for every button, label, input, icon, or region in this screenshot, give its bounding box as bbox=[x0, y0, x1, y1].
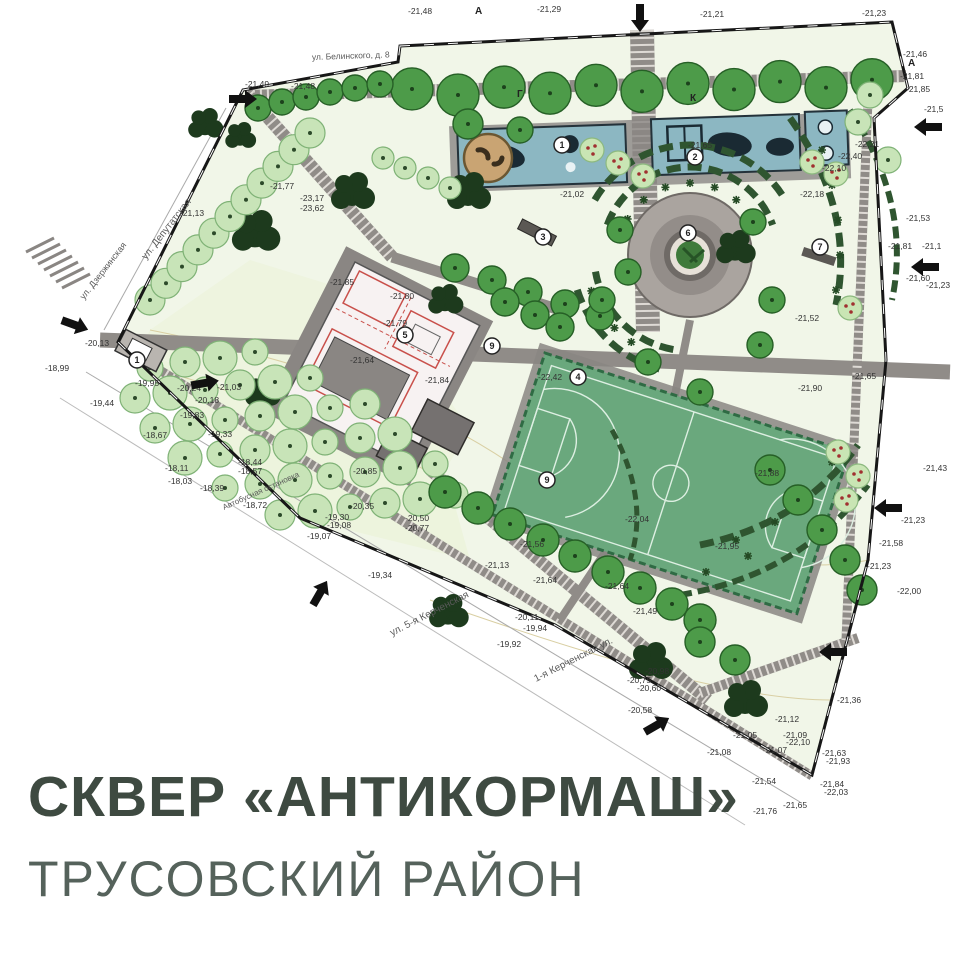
tree-existing bbox=[297, 365, 323, 391]
tree-existing bbox=[203, 341, 237, 375]
tree-existing bbox=[345, 423, 375, 453]
tree-deciduous bbox=[507, 117, 533, 143]
elevation-label: -22,42 bbox=[538, 372, 562, 382]
elevation-label: -22,00 bbox=[897, 586, 921, 596]
elevation-label: -21,36 bbox=[837, 695, 861, 705]
area-number-marker: 6 bbox=[680, 225, 696, 241]
site-plan-drawing: -21,48-21,29-21,21-21,23-21,49-21,48-21,… bbox=[0, 0, 960, 960]
svg-text:2: 2 bbox=[692, 152, 697, 162]
tree-deciduous bbox=[391, 68, 433, 110]
elevation-label: -21,80 bbox=[390, 291, 414, 301]
tree-deciduous bbox=[759, 61, 801, 103]
elevation-label: -21,23 bbox=[901, 515, 925, 525]
shrub-star-icon bbox=[702, 568, 710, 576]
elevation-label: -23,17 bbox=[300, 193, 324, 203]
elevation-label: -20,11 bbox=[515, 612, 539, 622]
tree-deciduous bbox=[269, 89, 295, 115]
elevation-label: -18,57 bbox=[238, 466, 262, 476]
elevation-label: -21,76 bbox=[753, 806, 777, 816]
elevation-label: -21,65 bbox=[688, 140, 712, 150]
shrub-rose bbox=[631, 164, 655, 188]
street-label: 1-я Керченская ул. bbox=[532, 635, 614, 684]
elevation-label: -21,95 bbox=[715, 541, 739, 551]
tree-existing bbox=[312, 429, 338, 455]
elevation-label: -18,39 bbox=[200, 483, 224, 493]
axis-letter: Г bbox=[517, 89, 523, 100]
entrance-arrow-icon bbox=[914, 118, 942, 136]
shrub-star-icon bbox=[640, 196, 648, 204]
elevation-label: -21,65 bbox=[783, 800, 807, 810]
shrub-star-icon bbox=[732, 196, 740, 204]
tree-deciduous bbox=[713, 69, 755, 111]
elevation-label: -22,40 bbox=[838, 151, 862, 161]
shrub-star-icon bbox=[711, 183, 719, 191]
svg-text:5: 5 bbox=[402, 330, 407, 340]
elevation-label: -21,43 bbox=[923, 463, 947, 473]
elevation-label: -21,5 bbox=[924, 104, 944, 114]
shrub-star-icon bbox=[836, 251, 844, 259]
elevation-label: -21,84 bbox=[425, 375, 449, 385]
stairs-west bbox=[26, 238, 90, 288]
tree-deciduous bbox=[720, 645, 750, 675]
tree-existing bbox=[207, 441, 233, 467]
tree-deciduous bbox=[529, 72, 571, 114]
elevation-label: -21,53 bbox=[906, 213, 930, 223]
tree-deciduous bbox=[429, 476, 461, 508]
shrub-star-icon bbox=[610, 324, 618, 332]
elevation-label: -20,60 bbox=[637, 683, 661, 693]
tree-deciduous bbox=[685, 627, 715, 657]
elevation-label: -19,94 bbox=[523, 623, 547, 633]
tree-deciduous bbox=[807, 515, 837, 545]
elevation-label: -18,11 bbox=[165, 463, 189, 473]
area-number-marker: 1 bbox=[554, 137, 570, 153]
tree-deciduous bbox=[494, 508, 526, 540]
elevation-label: -21,64 bbox=[350, 355, 374, 365]
elevation-label: -21,13 bbox=[485, 560, 509, 570]
elevation-label: -19,33 bbox=[208, 429, 232, 439]
tree-deciduous bbox=[687, 379, 713, 405]
shrub-rose bbox=[834, 488, 858, 512]
elevation-label: -20,18 bbox=[195, 395, 219, 405]
tree-deciduous bbox=[575, 64, 617, 106]
elevation-label: -22,21 bbox=[855, 139, 879, 149]
park-masterplan-page: -21,48-21,29-21,21-21,23-21,49-21,48-21,… bbox=[0, 0, 960, 960]
elevation-label: -21,85 bbox=[330, 277, 354, 287]
elevation-label: -21,23 bbox=[926, 280, 950, 290]
elevation-label: -20,35 bbox=[350, 501, 374, 511]
area-number-marker: 5 bbox=[397, 327, 413, 343]
tree-existing bbox=[317, 395, 343, 421]
elevation-label: -21,49 bbox=[245, 79, 269, 89]
tree-existing bbox=[170, 347, 200, 377]
tree-existing bbox=[372, 147, 394, 169]
svg-text:1: 1 bbox=[134, 355, 139, 365]
svg-text:1: 1 bbox=[559, 140, 564, 150]
elevation-label: -21,65 bbox=[852, 371, 876, 381]
area-number-marker: 1 bbox=[129, 352, 145, 368]
tree-existing bbox=[439, 177, 461, 199]
tree-deciduous bbox=[491, 288, 519, 316]
shrub-star-icon bbox=[832, 286, 840, 294]
svg-text:3: 3 bbox=[540, 232, 545, 242]
tree-existing bbox=[265, 500, 295, 530]
shrub-rose bbox=[606, 151, 630, 175]
svg-text:9: 9 bbox=[544, 475, 549, 485]
elevation-label: -21,29 bbox=[537, 4, 561, 14]
tree-deciduous bbox=[441, 254, 469, 282]
tree-existing bbox=[317, 463, 343, 489]
tree-deciduous bbox=[317, 79, 343, 105]
entrance-arrow-icon bbox=[305, 576, 335, 609]
elevation-label: -18,99 bbox=[45, 363, 69, 373]
tree-deciduous bbox=[589, 287, 615, 313]
shrub-rose bbox=[846, 464, 870, 488]
elevation-label: -19,34 bbox=[368, 570, 392, 580]
elevation-label: -20,58 bbox=[628, 705, 652, 715]
entrance-arrow-icon bbox=[874, 499, 902, 517]
elevation-label: -20,13 bbox=[85, 338, 109, 348]
shrub-star-icon bbox=[744, 552, 752, 560]
tree-existing bbox=[278, 395, 312, 429]
elevation-label: -21,90 bbox=[798, 383, 822, 393]
entrance-arrow-icon bbox=[631, 4, 649, 32]
tree-deciduous bbox=[607, 217, 633, 243]
tree-existing bbox=[245, 401, 275, 431]
elevation-label: -21,23 bbox=[862, 8, 886, 18]
tree-deciduous bbox=[783, 485, 813, 515]
tree-existing bbox=[422, 451, 448, 477]
elevation-label: -21,64 bbox=[605, 581, 629, 591]
tree-existing bbox=[417, 167, 439, 189]
elevation-label: -21,48 bbox=[408, 6, 432, 16]
svg-text:7: 7 bbox=[817, 242, 822, 252]
elevation-label: -21,05 bbox=[733, 730, 757, 740]
tree-deciduous bbox=[521, 301, 549, 329]
tree-deciduous bbox=[740, 209, 766, 235]
shrub-star-icon bbox=[661, 183, 669, 191]
elevation-label: -21,03 bbox=[217, 382, 241, 392]
tree-deciduous bbox=[747, 332, 773, 358]
tree-existing bbox=[378, 417, 412, 451]
tree-existing bbox=[875, 147, 901, 173]
shrub-rose bbox=[826, 440, 850, 464]
tree-deciduous bbox=[546, 313, 574, 341]
elevation-label: -18,03 bbox=[168, 476, 192, 486]
area-number-marker: 7 bbox=[812, 239, 828, 255]
tree-deciduous bbox=[805, 67, 847, 109]
tree-deciduous bbox=[559, 540, 591, 572]
elevation-label: -19,95 bbox=[135, 378, 159, 388]
tree-existing bbox=[857, 82, 883, 108]
tree-deciduous bbox=[759, 287, 785, 313]
street-label: ул. Белинского, д. 8 bbox=[312, 49, 390, 62]
shrub-star-icon bbox=[627, 338, 635, 346]
street-label: ул. Дзержинская bbox=[78, 240, 129, 301]
elevation-label: -22,18 bbox=[800, 189, 824, 199]
shrub-star-icon bbox=[686, 179, 694, 187]
tree-existing bbox=[242, 339, 268, 365]
elevation-label: -21,52 bbox=[795, 313, 819, 323]
area-number-marker: 2 bbox=[687, 149, 703, 165]
tree-deciduous bbox=[462, 492, 494, 524]
elevation-label: -21,56 bbox=[520, 539, 544, 549]
axis-letter: К bbox=[690, 93, 697, 104]
area-number-marker: 9 bbox=[484, 338, 500, 354]
elevation-label: -22,10 bbox=[822, 163, 846, 173]
tree-deciduous bbox=[635, 349, 661, 375]
elevation-label: -22,04 bbox=[625, 514, 649, 524]
svg-text:9: 9 bbox=[489, 341, 494, 351]
tree-existing bbox=[273, 429, 307, 463]
tree-deciduous bbox=[615, 259, 641, 285]
elevation-label: -21,64 bbox=[533, 575, 557, 585]
area-number-marker: 9 bbox=[539, 472, 555, 488]
elevation-label: -21,85 bbox=[906, 84, 930, 94]
tree-existing bbox=[845, 109, 871, 135]
elevation-label: -23,62 bbox=[300, 203, 324, 213]
elevation-label: -21,07 bbox=[763, 745, 787, 755]
tree-existing bbox=[258, 365, 292, 399]
elevation-label: -19,44 bbox=[90, 398, 114, 408]
shrub-rose bbox=[800, 150, 824, 174]
elevation-label: -21,93 bbox=[826, 756, 850, 766]
elevation-label: -21,02 bbox=[560, 189, 584, 199]
tree-deciduous bbox=[656, 588, 688, 620]
tree-deciduous bbox=[621, 70, 663, 112]
elevation-label: -21,12 bbox=[775, 714, 799, 724]
tree-deciduous bbox=[483, 66, 525, 108]
tree-deciduous bbox=[453, 109, 483, 139]
area-number-marker: 3 bbox=[535, 229, 551, 245]
tree-deciduous bbox=[667, 62, 709, 104]
area-number-marker: 4 bbox=[570, 369, 586, 385]
elevation-label: -21,88 bbox=[755, 468, 779, 478]
shrub-rose bbox=[580, 138, 604, 162]
elevation-label: -22,10 bbox=[786, 737, 810, 747]
elevation-label: -21,81 bbox=[900, 71, 924, 81]
elevation-label: -21,23 bbox=[867, 561, 891, 571]
tree-deciduous bbox=[830, 545, 860, 575]
shrub-star-icon bbox=[771, 518, 779, 526]
svg-text:4: 4 bbox=[575, 372, 580, 382]
elevation-label: -20,77 bbox=[405, 523, 429, 533]
svg-text:6: 6 bbox=[685, 228, 690, 238]
elevation-label: -19,08 bbox=[327, 520, 351, 530]
elevation-label: -22,03 bbox=[824, 787, 848, 797]
shrub-star-icon bbox=[834, 216, 842, 224]
entrance-arrow-icon bbox=[59, 312, 91, 338]
elevation-label: -21,21 bbox=[700, 9, 724, 19]
elevation-label: -21,49 bbox=[633, 606, 657, 616]
elevation-label: -20,50 bbox=[405, 513, 429, 523]
elevation-label: -21,81 bbox=[888, 241, 912, 251]
tree-existing bbox=[350, 389, 380, 419]
elevation-label: -21,08 bbox=[707, 747, 731, 757]
tree-deciduous bbox=[342, 75, 368, 101]
elevation-label: -21,1 bbox=[922, 241, 942, 251]
elevation-label: -19,92 bbox=[497, 639, 521, 649]
elevation-label: -21,48 bbox=[291, 81, 315, 91]
axis-letter: А bbox=[475, 6, 482, 17]
elevation-label: -20,85 bbox=[353, 466, 377, 476]
elevation-label: -21,77 bbox=[270, 181, 294, 191]
tree-existing bbox=[370, 488, 400, 518]
tree-conifer-cluster bbox=[188, 108, 223, 138]
tree-deciduous bbox=[367, 71, 393, 97]
axis-letter: А bbox=[908, 58, 915, 69]
elevation-label: -18,67 bbox=[143, 430, 167, 440]
elevation-label: -19,83 bbox=[180, 410, 204, 420]
elevation-label: -21,54 bbox=[752, 776, 776, 786]
elevation-label: -21,58 bbox=[879, 538, 903, 548]
tree-existing bbox=[295, 118, 325, 148]
shrub-rose bbox=[838, 296, 862, 320]
elevation-label: -19,07 bbox=[307, 531, 331, 541]
tree-existing bbox=[394, 157, 416, 179]
tree-existing bbox=[383, 451, 417, 485]
